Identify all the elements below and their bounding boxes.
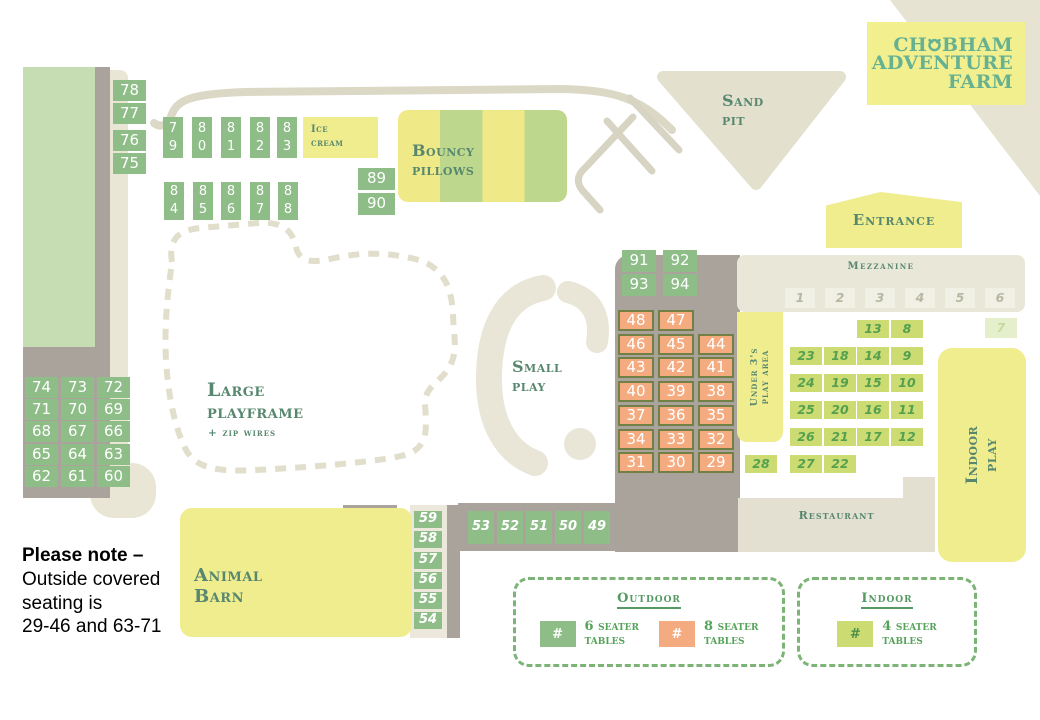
legend-item-8-seater: # 8 seater tables bbox=[659, 620, 758, 649]
entrance-label: Entrance bbox=[826, 212, 962, 230]
logo-line-2: Adventure bbox=[872, 54, 1013, 73]
table-93: 93 bbox=[622, 274, 656, 296]
table-44: 44 bbox=[698, 334, 734, 355]
note-line: 29-46 and 63-71 bbox=[22, 615, 202, 639]
table-9: 9 bbox=[891, 347, 923, 365]
table-90: 90 bbox=[358, 193, 395, 215]
farm-logo: Chbham Adventure Farm bbox=[867, 22, 1025, 105]
table-29: 29 bbox=[698, 452, 734, 473]
animal-barn-label: Animal Barn bbox=[194, 565, 263, 607]
legend-item-4-seater: # 4 seater tables bbox=[837, 620, 936, 649]
table-26: 26 bbox=[790, 428, 822, 446]
table-37: 37 bbox=[618, 405, 654, 426]
cow-icon bbox=[927, 37, 942, 52]
table-28: 28 bbox=[745, 455, 777, 473]
table-94: 94 bbox=[663, 274, 697, 296]
lime-table-swatch: # bbox=[837, 621, 873, 647]
table-79: 7 9 bbox=[163, 117, 183, 158]
restaurant-label: Restaurant bbox=[738, 510, 935, 523]
table-88: 8 8 bbox=[278, 182, 298, 220]
seating-note: Please note – Outside covered seating is… bbox=[22, 544, 202, 639]
table-50: 50 bbox=[555, 511, 581, 544]
table-85: 8 5 bbox=[193, 182, 213, 220]
table-55: 55 bbox=[414, 592, 442, 609]
table-27: 27 bbox=[790, 455, 822, 473]
table-80: 8 0 bbox=[192, 117, 212, 158]
table-64: 64 bbox=[61, 444, 94, 465]
table-66: 66 bbox=[97, 421, 130, 442]
table-89: 89 bbox=[358, 168, 395, 190]
field-zone bbox=[23, 67, 97, 347]
mezzanine-1: 1 bbox=[785, 288, 815, 308]
table-13: 13 bbox=[857, 320, 889, 338]
table-63: 63 bbox=[97, 444, 130, 465]
table-76: 76 bbox=[113, 130, 146, 151]
table-49: 49 bbox=[584, 511, 610, 544]
table-35: 35 bbox=[698, 405, 734, 426]
table-33: 33 bbox=[658, 429, 694, 450]
note-line: Outside covered bbox=[22, 568, 202, 592]
mezzanine-4: 4 bbox=[905, 288, 935, 308]
table-91: 91 bbox=[622, 250, 656, 272]
legend-label: 8 seater tables bbox=[704, 620, 758, 649]
table-24: 24 bbox=[790, 374, 822, 392]
legend-label: 4 seater tables bbox=[882, 620, 936, 649]
legend-item-6-seater: # 6 seater tables bbox=[540, 620, 639, 649]
table-74: 74 bbox=[25, 377, 58, 398]
bouncy-pillows-label: Bouncy pillows bbox=[412, 142, 474, 180]
table-19: 19 bbox=[824, 374, 856, 392]
table-54: 54 bbox=[414, 612, 442, 629]
table-25: 25 bbox=[790, 401, 822, 419]
barn-wall bbox=[447, 505, 460, 638]
table-81: 8 1 bbox=[221, 117, 241, 158]
table-83: 8 3 bbox=[277, 117, 297, 158]
table-65: 65 bbox=[25, 444, 58, 465]
table-7: 7 bbox=[985, 318, 1017, 338]
note-title: Please note – bbox=[22, 544, 202, 568]
table-30: 30 bbox=[658, 452, 694, 473]
mezzanine-3: 3 bbox=[865, 288, 895, 308]
table-73: 73 bbox=[61, 377, 94, 398]
table-47: 47 bbox=[658, 310, 694, 331]
table-42: 42 bbox=[658, 357, 694, 378]
table-17: 17 bbox=[857, 428, 889, 446]
table-71: 71 bbox=[25, 399, 58, 420]
table-21: 21 bbox=[824, 428, 856, 446]
table-43: 43 bbox=[618, 357, 654, 378]
green-table-swatch: # bbox=[540, 621, 576, 647]
table-22: 22 bbox=[824, 455, 856, 473]
table-82: 8 2 bbox=[250, 117, 270, 158]
table-12: 12 bbox=[891, 428, 923, 446]
table-51: 51 bbox=[526, 511, 552, 544]
table-57: 57 bbox=[414, 552, 442, 569]
table-58: 58 bbox=[414, 531, 442, 548]
sand-pit-label: Sand pit bbox=[722, 92, 764, 130]
table-8: 8 bbox=[891, 320, 923, 338]
table-10: 10 bbox=[891, 374, 923, 392]
table-61: 61 bbox=[61, 466, 94, 487]
under-3s-label: Under 3's play area bbox=[740, 317, 780, 437]
table-62: 62 bbox=[25, 466, 58, 487]
table-46: 46 bbox=[618, 334, 654, 355]
table-45: 45 bbox=[658, 334, 694, 355]
table-31: 31 bbox=[618, 452, 654, 473]
table-34: 34 bbox=[618, 429, 654, 450]
table-70: 70 bbox=[61, 399, 94, 420]
table-69: 69 bbox=[97, 399, 130, 420]
mezzanine-5: 5 bbox=[945, 288, 975, 308]
table-15: 15 bbox=[857, 374, 889, 392]
small-play-label: Small play bbox=[512, 358, 562, 396]
mezzanine-6: 6 bbox=[985, 288, 1015, 308]
table-86: 8 6 bbox=[221, 182, 241, 220]
table-53: 53 bbox=[468, 511, 494, 544]
table-38: 38 bbox=[698, 381, 734, 402]
large-playframe-label: Large playframe bbox=[207, 379, 304, 424]
legend-label: 6 seater tables bbox=[585, 620, 639, 649]
orange-table-swatch: # bbox=[659, 621, 695, 647]
note-line: seating is bbox=[22, 592, 202, 616]
table-14: 14 bbox=[857, 347, 889, 365]
mezzanine-2: 2 bbox=[825, 288, 855, 308]
logo-line-3: Farm bbox=[948, 73, 1013, 92]
table-56: 56 bbox=[414, 572, 442, 589]
table-18: 18 bbox=[824, 347, 856, 365]
table-60: 60 bbox=[97, 466, 130, 487]
table-78: 78 bbox=[113, 80, 146, 101]
mezzanine-label: Mezzanine bbox=[737, 261, 1025, 273]
table-84: 8 4 bbox=[164, 182, 184, 220]
table-16: 16 bbox=[857, 401, 889, 419]
table-75: 75 bbox=[113, 153, 146, 174]
legend-outdoor: Outdoor # 6 seater tables # 8 seater tab… bbox=[513, 577, 785, 667]
table-52: 52 bbox=[497, 511, 523, 544]
restaurant-zone bbox=[738, 498, 935, 552]
table-39: 39 bbox=[658, 381, 694, 402]
table-92: 92 bbox=[663, 250, 697, 272]
legend-outdoor-title: Outdoor bbox=[617, 591, 681, 609]
table-32: 32 bbox=[698, 429, 734, 450]
table-87: 8 7 bbox=[250, 182, 270, 220]
legend-indoor-title: Indoor bbox=[861, 591, 912, 609]
zip-wires-label: + zip wires bbox=[208, 427, 276, 439]
restaurant-notch bbox=[903, 477, 935, 500]
table-36: 36 bbox=[658, 405, 694, 426]
table-72: 72 bbox=[97, 377, 130, 398]
table-77: 77 bbox=[113, 103, 146, 124]
legend-indoor: Indoor # 4 seater tables bbox=[797, 577, 977, 667]
table-59: 59 bbox=[414, 511, 442, 528]
queue-path bbox=[578, 98, 679, 210]
table-68: 68 bbox=[25, 421, 58, 442]
table-48: 48 bbox=[618, 310, 654, 331]
ice-cream-label: Ice cream bbox=[311, 123, 343, 151]
table-11: 11 bbox=[891, 401, 923, 419]
table-23: 23 bbox=[790, 347, 822, 365]
park-map: Chbham Adventure Farm Ice cream Bouncy p… bbox=[0, 0, 1040, 720]
table-67: 67 bbox=[61, 421, 94, 442]
table-20: 20 bbox=[824, 401, 856, 419]
table-40: 40 bbox=[618, 381, 654, 402]
indoor-play-label: Indoor play bbox=[952, 395, 1012, 515]
table-41: 41 bbox=[698, 357, 734, 378]
